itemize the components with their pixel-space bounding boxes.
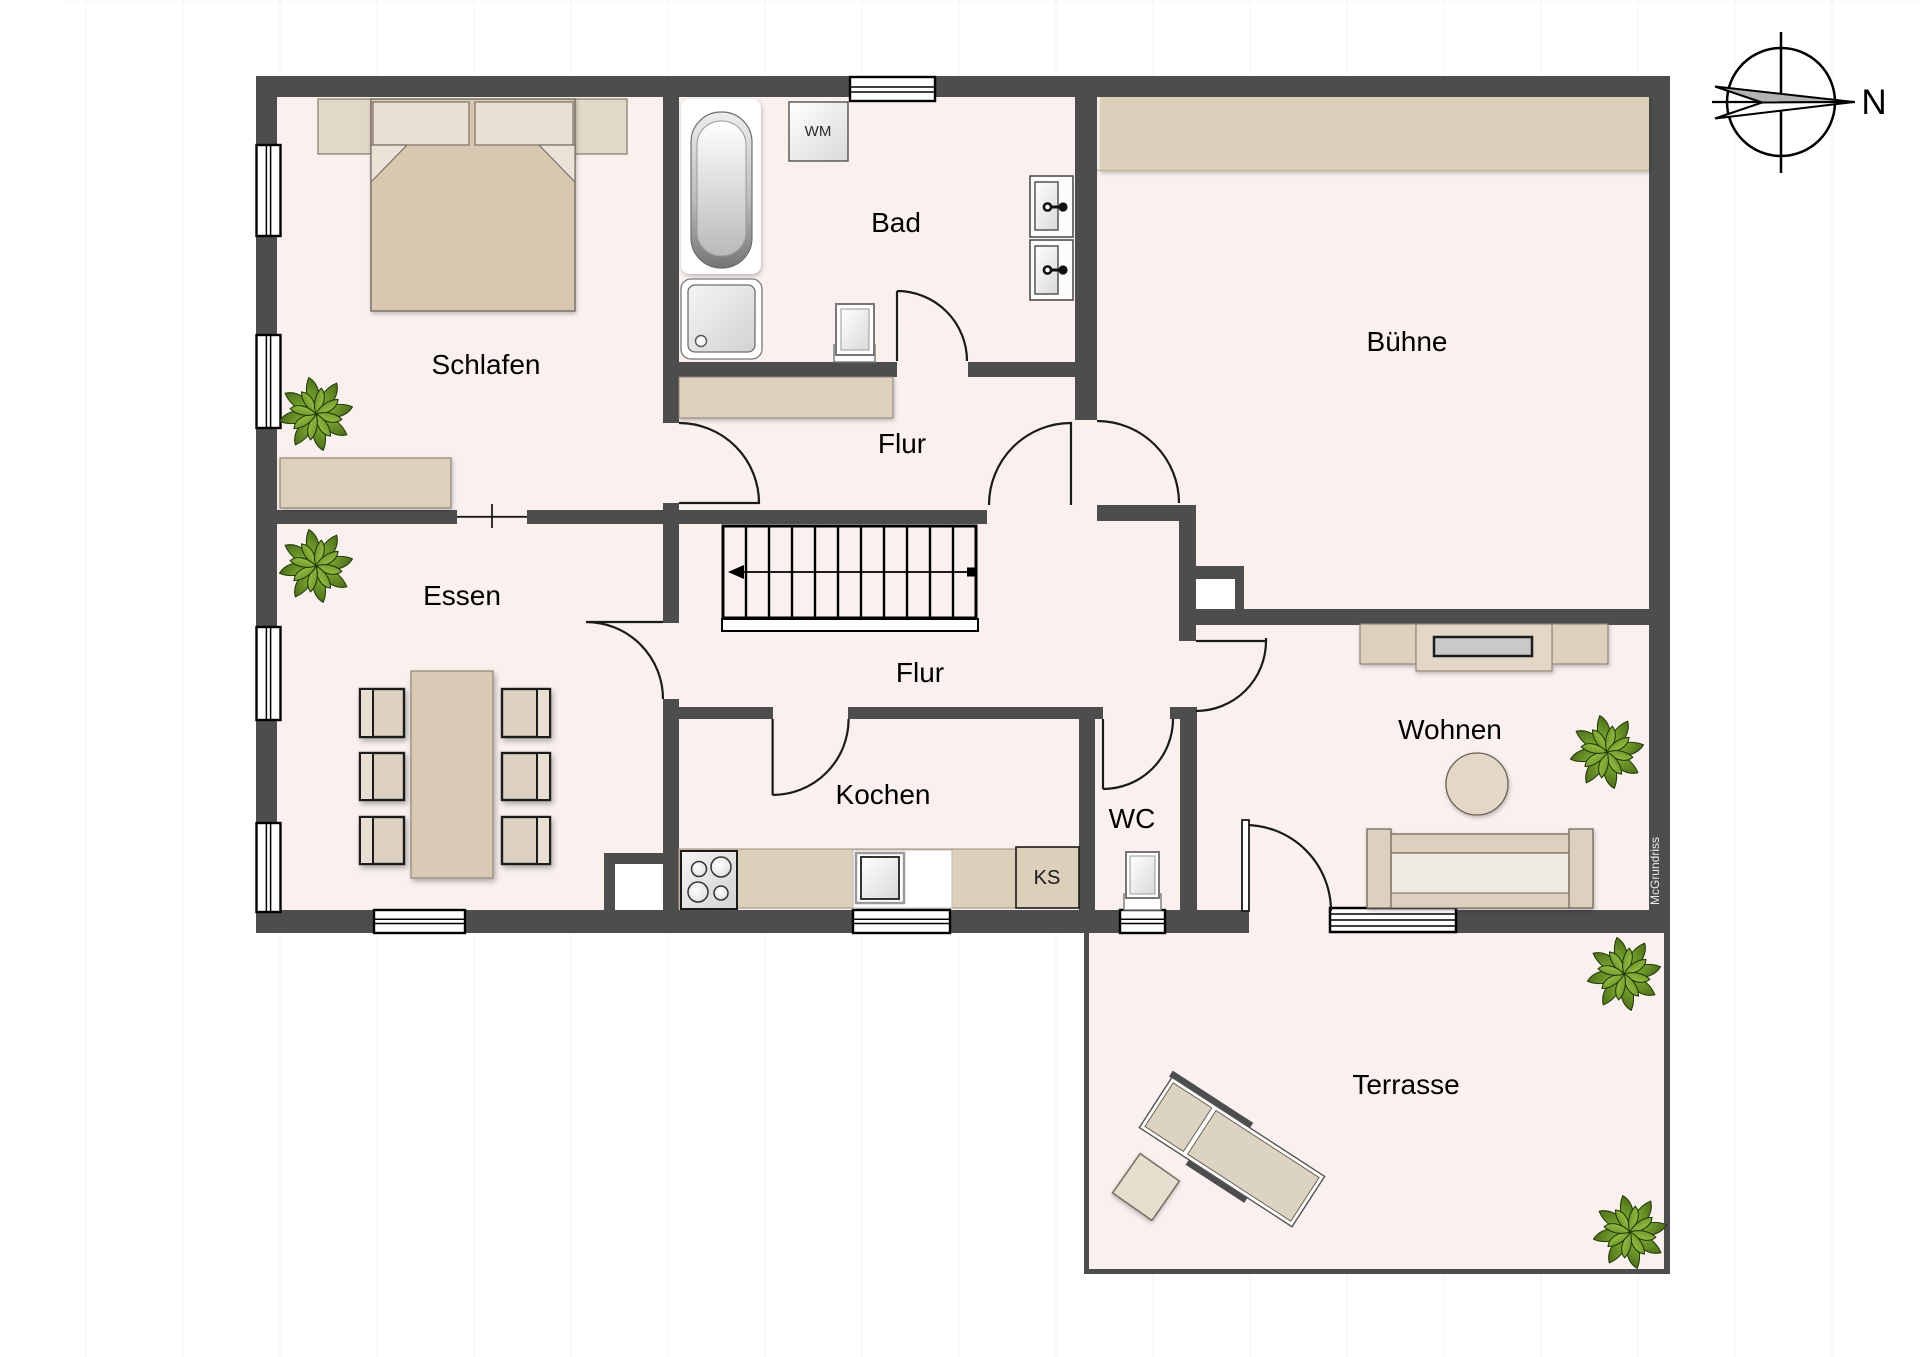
svg-text:Flur: Flur	[896, 657, 944, 688]
svg-text:Bad: Bad	[871, 207, 921, 238]
svg-text:Kochen: Kochen	[836, 779, 931, 810]
svg-text:KS: KS	[1034, 867, 1061, 889]
svg-text:WM: WM	[805, 123, 832, 140]
svg-text:Terrasse: Terrasse	[1352, 1069, 1459, 1100]
svg-text:N: N	[1861, 83, 1886, 122]
svg-text:Schlafen: Schlafen	[432, 349, 541, 380]
svg-text:McGrundriss: McGrundriss	[1648, 837, 1662, 905]
svg-text:Flur: Flur	[878, 428, 926, 459]
svg-text:Essen: Essen	[423, 580, 501, 611]
svg-text:Wohnen: Wohnen	[1398, 714, 1502, 745]
svg-text:WC: WC	[1109, 803, 1156, 834]
svg-text:Bühne: Bühne	[1367, 326, 1448, 357]
